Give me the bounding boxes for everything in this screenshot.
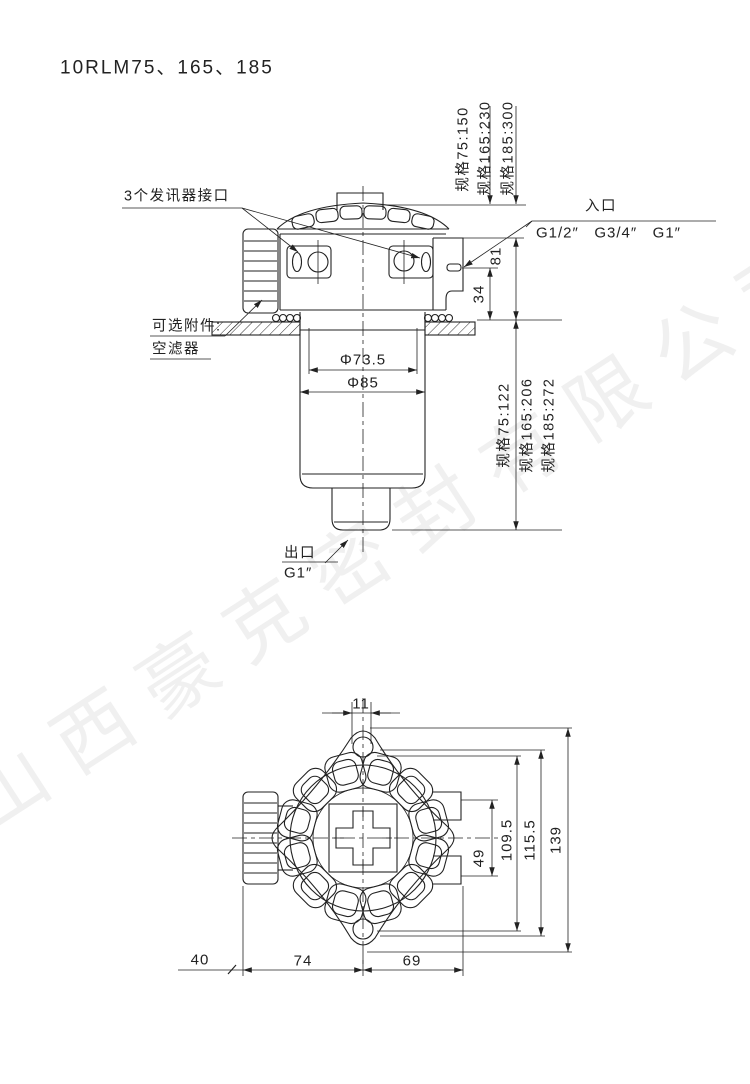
optional-accessory-label: 可选附件: [152, 315, 222, 336]
air-filter-label: 空滤器 [152, 338, 200, 359]
filter-bowl [300, 314, 425, 488]
sensor-ports [287, 246, 433, 278]
dim-key-width: 11 [352, 696, 370, 713]
drawing-title: 10RLM75、165、185 [60, 53, 274, 80]
bracket-tab-upper [433, 792, 461, 820]
spec-bowl-75: 规格75:122 [493, 382, 514, 467]
spec-bowl-165: 规格165:206 [516, 378, 537, 473]
outlet-label: 出口 [284, 542, 316, 563]
air-filter-side [243, 229, 278, 313]
inlet-port [447, 264, 461, 271]
dim-inlet-height: 81 [488, 247, 505, 266]
spec-bowl-185: 规格185:272 [538, 378, 559, 473]
sensor-ports-label: 3个发讯器接口 [124, 185, 230, 206]
spec-top-185: 规格185:300 [497, 101, 518, 196]
dim-inner-diameter: Φ73.5 [340, 352, 386, 369]
outlet-thread: G1″ [284, 565, 312, 582]
dim-across-2: 115.5 [522, 819, 539, 860]
dim-plate-to-port: 34 [471, 285, 488, 304]
dim-span-right: 69 [403, 953, 422, 970]
spec-top-165: 规格165:230 [474, 101, 495, 196]
drawing-linework [0, 0, 750, 1084]
inlet-thread-options: G1/2″ G3/4″ G1″ [536, 225, 681, 242]
bracket-tab-lower [433, 856, 461, 884]
spec-top-75: 规格75:150 [452, 106, 473, 191]
inlet-label: 入口 [585, 195, 617, 216]
dim-across-1: 109.5 [499, 819, 516, 862]
outlet-port [332, 488, 390, 530]
dim-offset-left: 40 [191, 952, 210, 969]
dim-span-left: 74 [294, 953, 313, 970]
dim-bracket-span: 49 [471, 849, 488, 868]
dim-diagonal: 139 [548, 826, 565, 854]
dim-outer-diameter: Φ85 [347, 375, 379, 392]
technical-drawing-page: 山西豪克密封有限公司 [0, 0, 750, 1084]
